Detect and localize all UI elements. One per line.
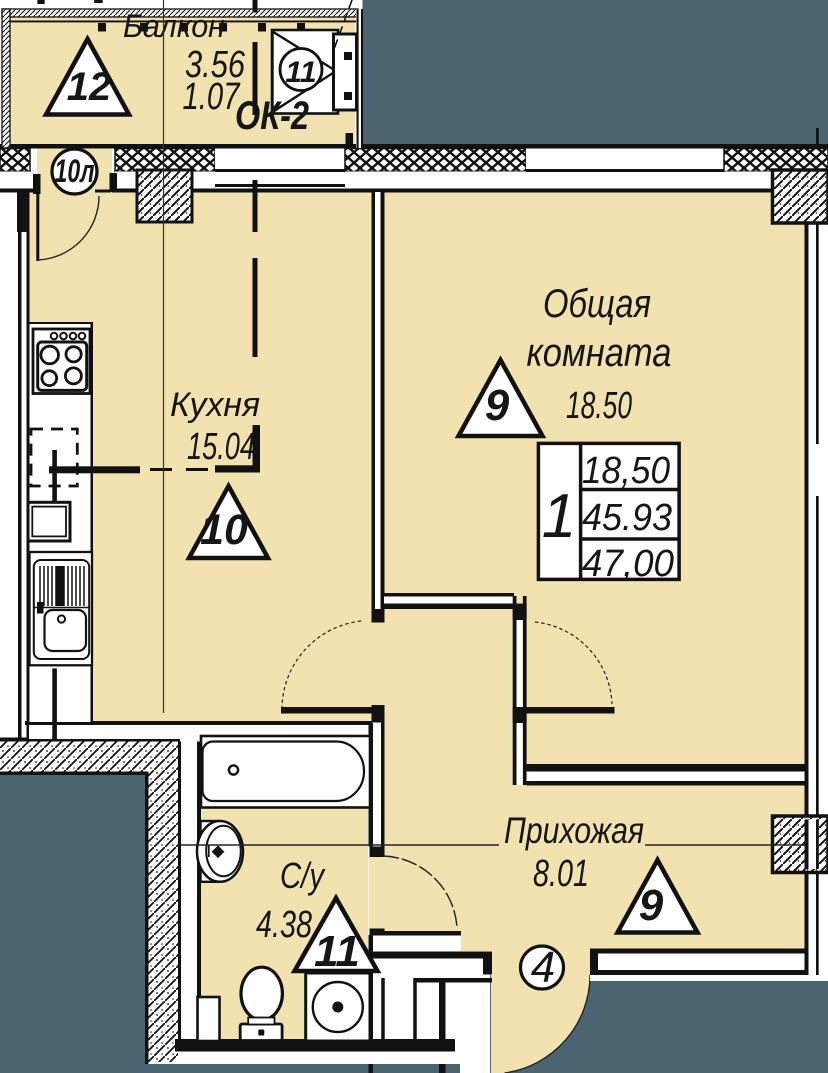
svg-text:4: 4 — [531, 943, 555, 992]
svg-text:12: 12 — [67, 65, 112, 109]
svg-text:45.93: 45.93 — [582, 497, 672, 539]
svg-text:комната: комната — [527, 331, 672, 375]
svg-text:ОК-2: ОК-2 — [235, 94, 309, 138]
svg-text:11: 11 — [314, 927, 360, 976]
svg-text:Прихожая: Прихожая — [504, 810, 644, 851]
svg-text:8.01: 8.01 — [533, 853, 589, 895]
svg-text:18.50: 18.50 — [566, 385, 632, 427]
svg-text:11: 11 — [285, 56, 316, 89]
svg-text:С/у: С/у — [280, 855, 326, 896]
svg-text:10: 10 — [200, 506, 248, 554]
svg-text:47,00: 47,00 — [582, 543, 674, 585]
svg-text:Кухня: Кухня — [170, 386, 260, 424]
svg-text:1: 1 — [542, 482, 576, 551]
svg-text:Балкон: Балкон — [123, 8, 225, 44]
svg-text:18,50: 18,50 — [582, 450, 670, 492]
svg-text:15.04: 15.04 — [187, 426, 255, 468]
svg-text:9: 9 — [485, 381, 510, 430]
svg-text:10л: 10л — [55, 153, 95, 189]
svg-text:9: 9 — [639, 881, 664, 930]
svg-text:1.07: 1.07 — [183, 76, 241, 118]
svg-text:4.38: 4.38 — [256, 904, 312, 946]
svg-text:Общая: Общая — [543, 282, 651, 326]
